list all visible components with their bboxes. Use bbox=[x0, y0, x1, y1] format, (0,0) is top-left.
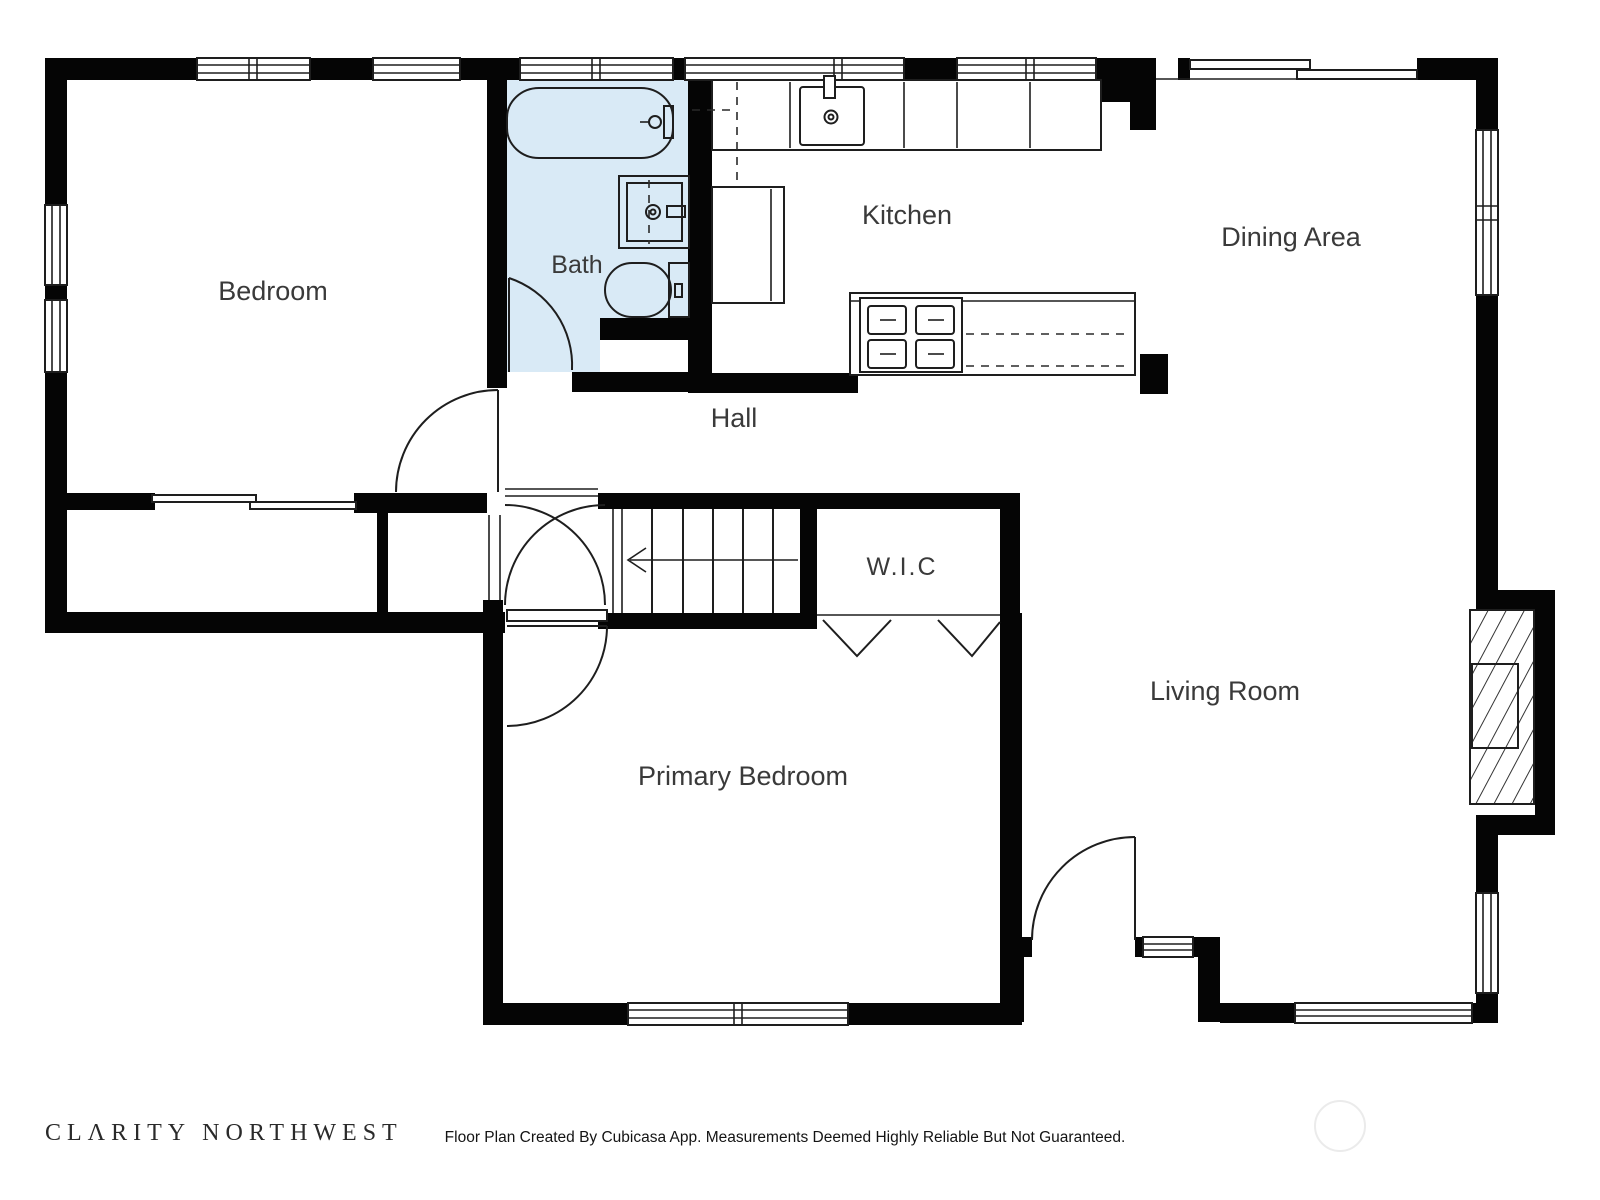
wall bbox=[1135, 937, 1143, 957]
wall bbox=[1476, 815, 1555, 835]
wall bbox=[1417, 58, 1498, 80]
wall bbox=[1476, 80, 1498, 130]
wall bbox=[460, 58, 520, 80]
fireplace-icon bbox=[1470, 610, 1534, 804]
walls bbox=[45, 58, 1555, 1025]
disclaimer-text: Floor Plan Created By Cubicasa App. Meas… bbox=[445, 1129, 1126, 1146]
wall bbox=[572, 372, 688, 392]
wall bbox=[1140, 354, 1168, 394]
staircase bbox=[613, 509, 798, 613]
wall bbox=[1130, 58, 1156, 130]
wall bbox=[1476, 993, 1498, 1023]
window bbox=[1295, 1003, 1472, 1023]
wall bbox=[600, 318, 688, 340]
sliding-door bbox=[1156, 60, 1417, 79]
window bbox=[685, 58, 904, 80]
wall bbox=[1476, 295, 1498, 590]
room-label-bath: Bath bbox=[551, 251, 602, 279]
door-swing bbox=[505, 489, 605, 605]
wall bbox=[1000, 493, 1020, 613]
wall bbox=[45, 285, 67, 300]
window bbox=[373, 58, 460, 80]
stove-icon bbox=[860, 298, 962, 372]
wall bbox=[483, 1003, 628, 1025]
door-swing bbox=[507, 610, 607, 726]
room-label-hall: Hall bbox=[711, 403, 758, 433]
footer: CLΛRITY NORTHWEST Floor Plan Created By … bbox=[45, 1101, 1365, 1151]
wall bbox=[904, 58, 957, 80]
window bbox=[1476, 893, 1498, 993]
wall bbox=[1535, 590, 1555, 835]
wall bbox=[1198, 940, 1220, 1022]
room-label-wic: W.I.C bbox=[866, 553, 937, 581]
door-swing bbox=[396, 390, 498, 492]
kitchen-counter bbox=[712, 187, 784, 303]
wall bbox=[377, 510, 388, 612]
wall bbox=[1000, 940, 1024, 1022]
room-label-primary-bedroom: Primary Bedroom bbox=[638, 761, 848, 791]
wall bbox=[45, 493, 155, 510]
wall bbox=[1476, 835, 1498, 893]
sliding-bypass-door bbox=[152, 495, 356, 509]
window bbox=[957, 58, 1096, 80]
watermark-circle bbox=[1315, 1101, 1365, 1151]
wall bbox=[1220, 1003, 1295, 1023]
kitchen-counter bbox=[712, 80, 1101, 150]
closet-bifold-doors bbox=[817, 615, 1000, 656]
wall bbox=[800, 493, 817, 629]
window bbox=[45, 300, 67, 372]
wall bbox=[45, 612, 505, 633]
wall bbox=[1178, 58, 1190, 80]
kitchen-sink-icon bbox=[800, 76, 864, 145]
door-swing bbox=[1032, 837, 1135, 940]
cased-opening bbox=[489, 515, 500, 600]
window bbox=[1476, 130, 1498, 295]
wall bbox=[45, 58, 67, 205]
window bbox=[197, 58, 310, 80]
wall bbox=[673, 58, 685, 80]
floor-plan-page: Bedroom Bath Kitchen Dining Area Hall W.… bbox=[0, 0, 1600, 1200]
window bbox=[1143, 937, 1193, 957]
wall bbox=[354, 493, 487, 513]
wall bbox=[483, 600, 503, 1025]
wall bbox=[688, 80, 712, 393]
wall bbox=[598, 613, 817, 629]
wall bbox=[45, 58, 197, 80]
room-label-living-room: Living Room bbox=[1150, 676, 1300, 706]
floor-plan-drawing: Bedroom Bath Kitchen Dining Area Hall W.… bbox=[0, 0, 1600, 1200]
window bbox=[45, 205, 67, 285]
room-label-dining-area: Dining Area bbox=[1221, 222, 1362, 252]
brand-logo: CLΛRITY NORTHWEST bbox=[45, 1120, 403, 1146]
wall bbox=[487, 80, 507, 388]
wall bbox=[310, 58, 373, 80]
wall bbox=[848, 1003, 1002, 1025]
room-label-bedroom: Bedroom bbox=[218, 276, 328, 306]
window bbox=[520, 58, 673, 80]
wall bbox=[712, 373, 858, 393]
room-label-kitchen: Kitchen bbox=[862, 200, 952, 230]
window bbox=[628, 1003, 848, 1025]
